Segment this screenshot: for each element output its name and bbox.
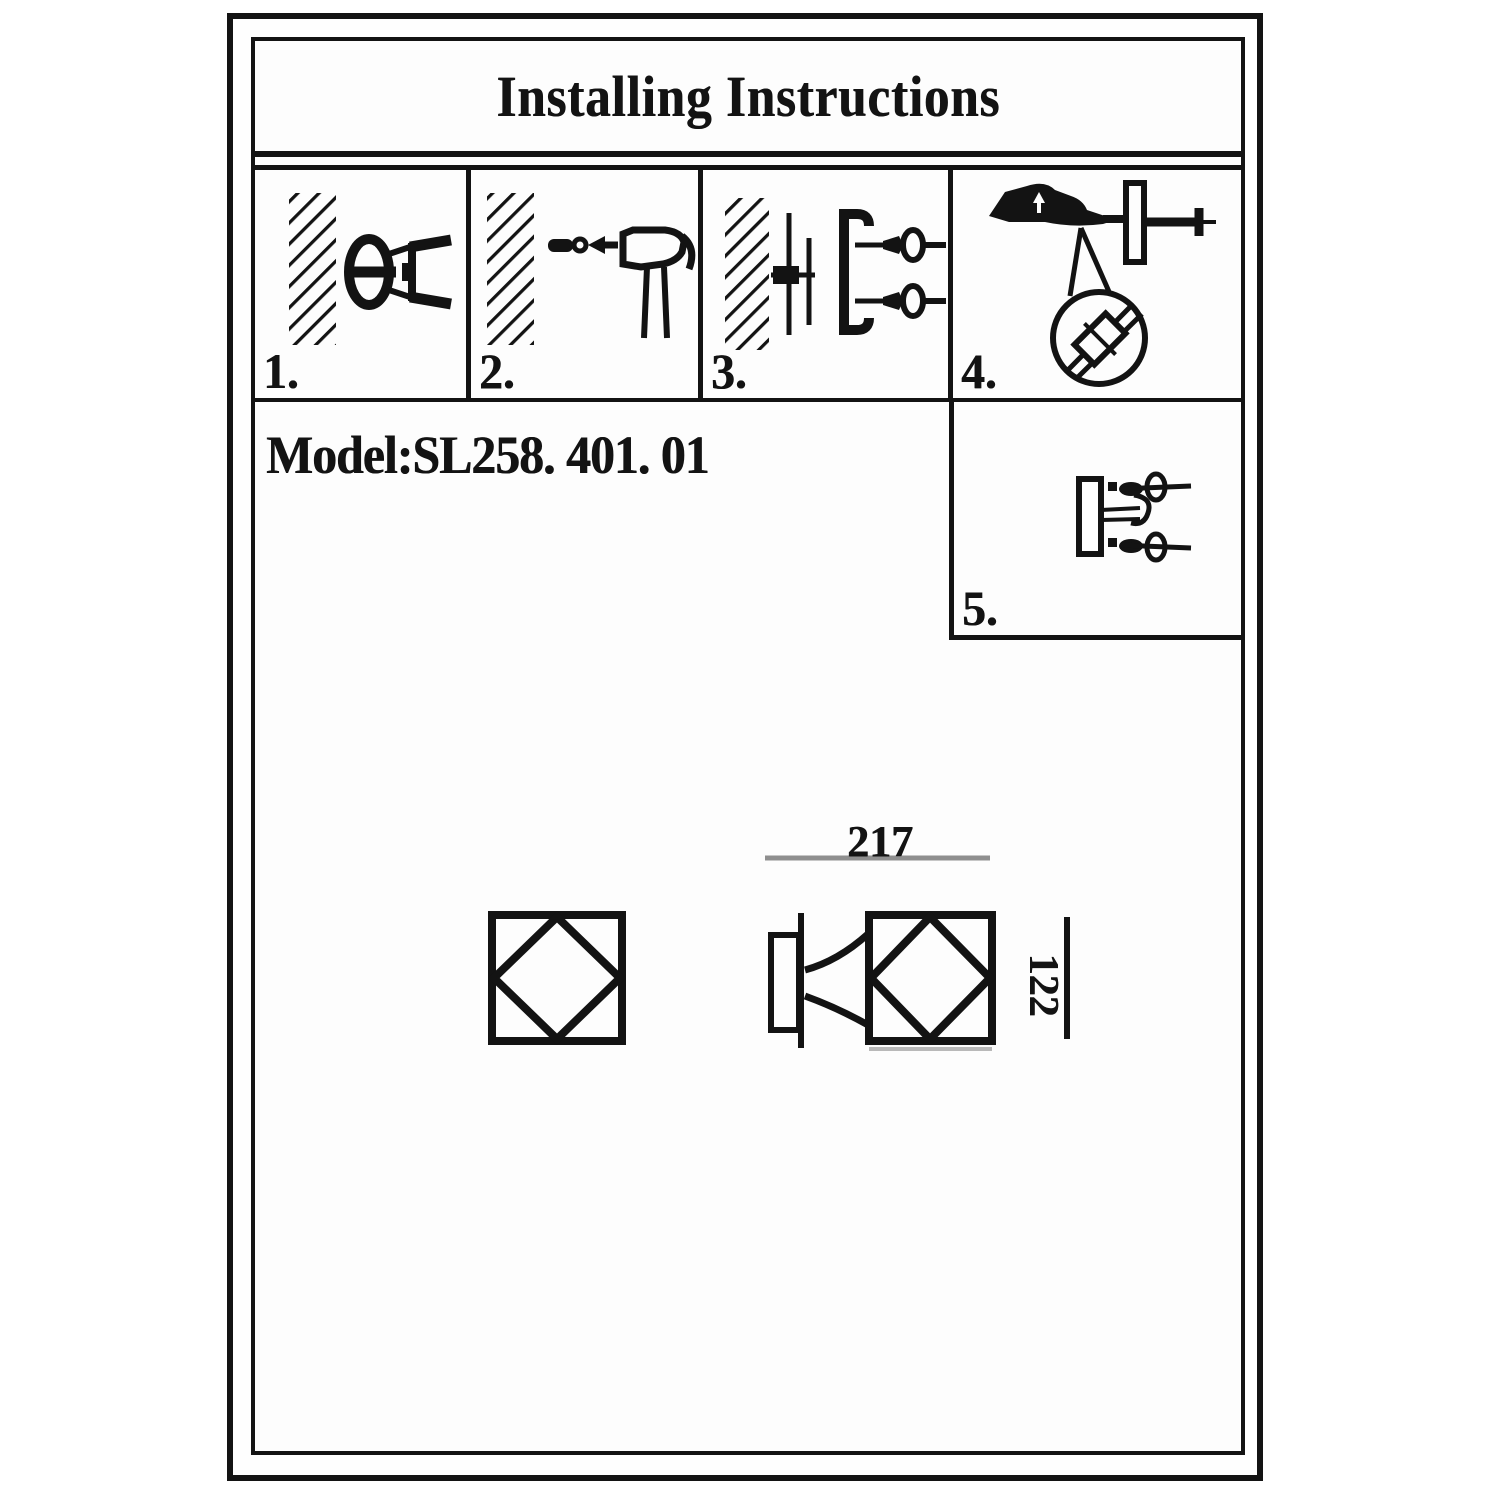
- title-box: Installing Instructions: [255, 41, 1241, 157]
- mounting-screw-glyph: [1103, 183, 1216, 262]
- step-number-2: 2.: [479, 346, 515, 396]
- step-panel-2: 2.: [471, 170, 703, 398]
- page-title: Installing Instructions: [496, 63, 1000, 130]
- step-number-3: 3.: [711, 346, 747, 396]
- step-number-4: 4.: [961, 346, 997, 396]
- hammer-glyph: [623, 230, 692, 338]
- screw-top-glyph: [855, 230, 946, 260]
- wall-hatch: [487, 193, 534, 345]
- step-number-5: 5.: [962, 583, 998, 633]
- step-number-1: 1.: [263, 346, 299, 396]
- step-panel-5: 5.: [949, 402, 1241, 640]
- bracket-glyph: [844, 214, 869, 330]
- step-panel-4: 4.: [953, 170, 1241, 398]
- width-dimension-label: 217: [800, 816, 960, 867]
- step-panel-1: 1.: [255, 170, 471, 398]
- instruction-sheet: Installing Instructions: [0, 0, 1500, 1500]
- screw-top-glyph: [1119, 474, 1191, 500]
- steps-row: 1.: [255, 165, 1241, 402]
- product-front-view: [492, 915, 622, 1041]
- wall-hatch: [725, 198, 769, 350]
- model-number: Model:SL258. 401. 01: [266, 424, 709, 486]
- backplate-glyph: [771, 213, 815, 335]
- step-panel-3: 3.: [703, 170, 953, 398]
- dimension-drawing: [440, 818, 1100, 1118]
- wall-anchor-glyph: [548, 236, 618, 254]
- screw-bottom-glyph: [855, 286, 946, 316]
- screw-bottom-glyph: [1119, 534, 1191, 560]
- drill-glyph: [345, 239, 451, 305]
- wall-hatch: [289, 193, 336, 345]
- product-side-view: [771, 913, 992, 1048]
- height-dimension-label: 122: [1023, 928, 1067, 1042]
- hand-tool-glyph: [989, 184, 1119, 226]
